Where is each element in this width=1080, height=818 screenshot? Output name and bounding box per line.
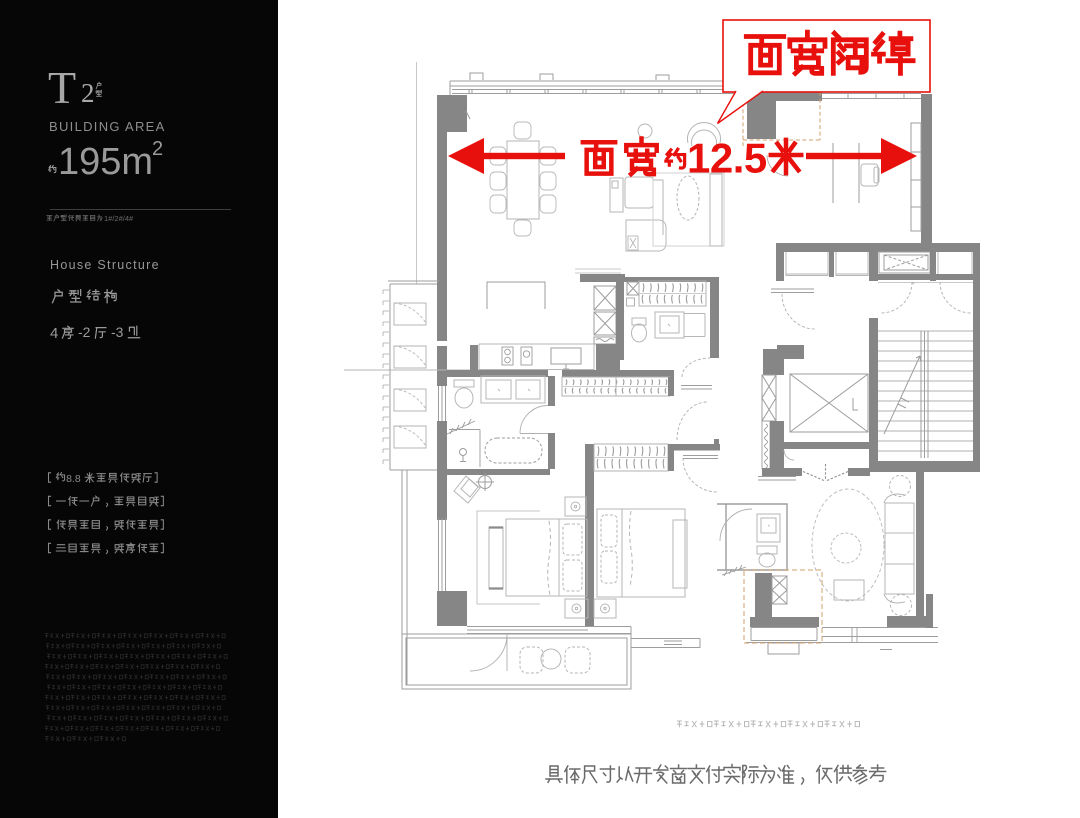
- svg-text:-3: -3: [111, 324, 124, 340]
- svg-text:1#/2#/4#: 1#/2#/4#: [104, 214, 134, 223]
- svg-text:8.8: 8.8: [66, 473, 81, 485]
- svg-text:BUILDING AREA: BUILDING AREA: [49, 119, 166, 134]
- svg-text:T: T: [48, 62, 76, 113]
- svg-text:House Structure: House Structure: [50, 258, 160, 272]
- svg-text:2: 2: [152, 138, 163, 160]
- svg-text:4: 4: [50, 325, 58, 342]
- svg-text:2: 2: [81, 78, 95, 108]
- svg-text:-2: -2: [78, 324, 91, 340]
- svg-text:195m: 195m: [58, 141, 153, 183]
- svg-text:12.5: 12.5: [687, 135, 767, 182]
